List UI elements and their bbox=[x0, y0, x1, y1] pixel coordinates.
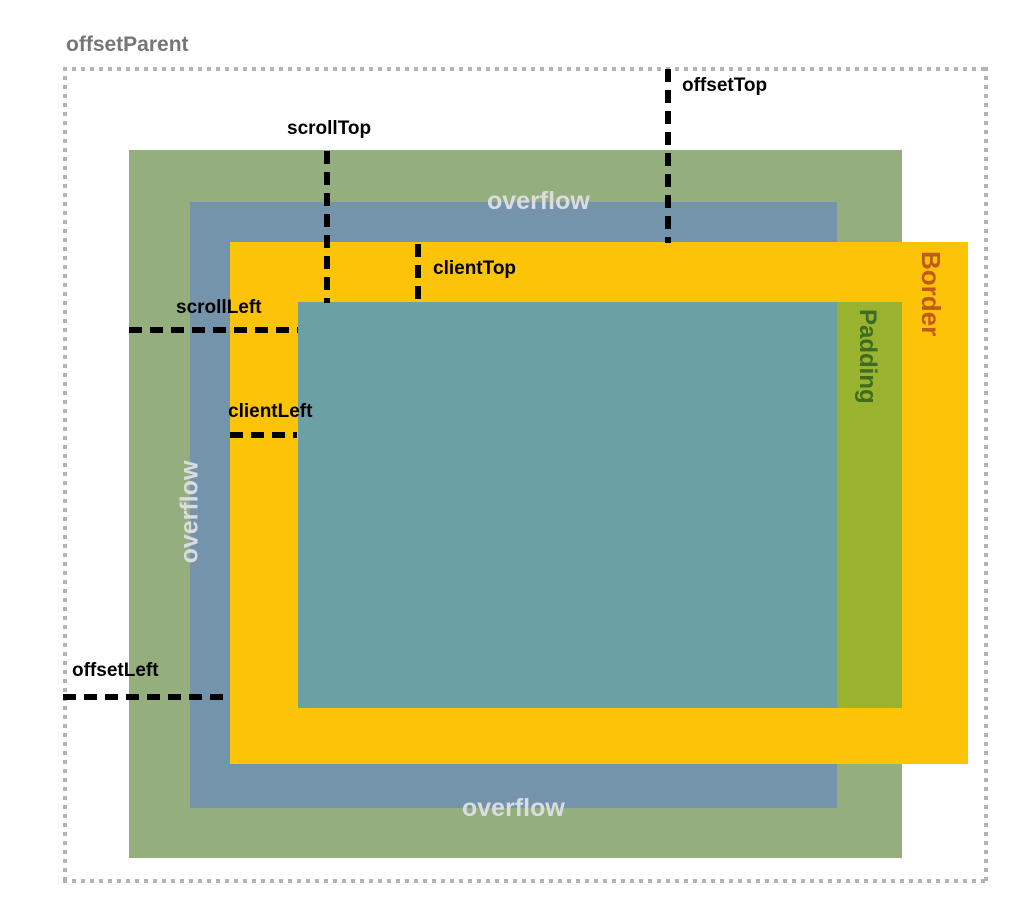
offset-top-dashed-line bbox=[665, 69, 671, 243]
offset-parent-label: offsetParent bbox=[66, 33, 189, 56]
overflow-label-top: overflow bbox=[487, 189, 590, 214]
client-left-dashed-line bbox=[230, 432, 297, 438]
offset-top-label: offsetTop bbox=[682, 76, 767, 97]
overflow-label-bottom: overflow bbox=[462, 796, 565, 821]
client-top-dashed-line bbox=[415, 244, 421, 303]
content-area-rect bbox=[298, 302, 837, 708]
overflow-label-left: overflow bbox=[178, 461, 203, 564]
element-geometry-diagram: offsetParent overflow overflow overflow … bbox=[0, 0, 1024, 920]
scroll-top-dashed-line bbox=[324, 151, 330, 303]
padding-label: Padding bbox=[855, 309, 879, 404]
border-label: Border bbox=[918, 251, 944, 336]
client-top-label: clientTop bbox=[433, 259, 516, 280]
scroll-left-dashed-line bbox=[129, 327, 298, 333]
client-left-label: clientLeft bbox=[228, 402, 312, 423]
offset-left-label: offsetLeft bbox=[72, 661, 159, 682]
offset-left-dashed-line bbox=[63, 694, 230, 700]
scroll-left-label: scrollLeft bbox=[176, 298, 262, 319]
scroll-top-label: scrollTop bbox=[287, 119, 371, 140]
